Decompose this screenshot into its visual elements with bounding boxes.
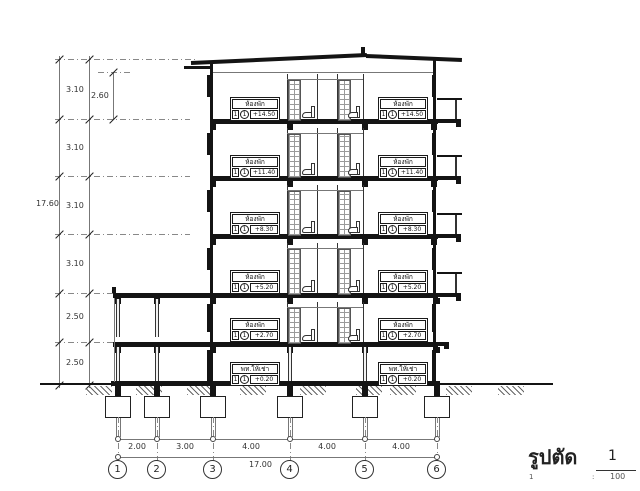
toilet-icon (348, 335, 358, 341)
tag-finish-box: 1 (232, 375, 239, 384)
tag-finish-circle: 1 (240, 168, 249, 177)
bathroom-wall-line (363, 74, 364, 119)
tag-detail-row: 11+0.20 (380, 375, 426, 384)
balcony-rail-top (437, 155, 462, 157)
toilet-icon (348, 169, 358, 175)
bathroom-wall-line (317, 74, 318, 119)
pile (159, 418, 160, 437)
window-bar (432, 350, 436, 382)
balcony-rail-post (455, 99, 457, 119)
tag-detail-row: 11+2.70 (380, 331, 426, 340)
tag-room-name: ห้องพัก (380, 99, 426, 109)
level-line (55, 342, 113, 343)
room-tag: ห้องพัก11+2.70 (230, 318, 280, 342)
tag-finish-box: 1 (380, 110, 387, 119)
tag-room-name: พท.ให้เช่า (380, 364, 426, 374)
tag-finish-box: 1 (232, 168, 239, 177)
beam-drop (431, 124, 437, 130)
tag-finish-circle: 1 (388, 225, 397, 234)
horizontal-dim-label: 2.00 (128, 442, 146, 451)
balcony-edge (456, 293, 461, 301)
dim-node (115, 436, 121, 442)
tag-level: +2.70 (398, 331, 426, 340)
pile (120, 418, 121, 437)
tag-detail-row: 11+11.40 (380, 168, 426, 177)
tag-finish-box: 1 (380, 168, 387, 177)
tag-level: +0.20 (398, 375, 426, 384)
level-line (55, 59, 195, 60)
vertical-dim-label: 3.10 (66, 85, 84, 94)
section-drawing-sheet: รูปตัด 1 1 : 100 3.103.103.103.102.502.5… (0, 0, 640, 491)
column (155, 347, 159, 381)
tag-level: +8.30 (250, 225, 278, 234)
window-bar (207, 190, 211, 212)
footing (105, 396, 131, 418)
tag-level: +2.70 (250, 331, 278, 340)
horizontal-dim-overall-label: 17.00 (249, 460, 272, 469)
level-line (55, 119, 190, 120)
grid-bubble: 1 (108, 460, 127, 479)
balcony-rail-top (437, 213, 462, 215)
floor-slab (113, 342, 438, 347)
tag-room-name: ห้องพัก (380, 157, 426, 167)
beam-drop (431, 181, 437, 187)
tag-level: +5.20 (398, 283, 426, 292)
level-line (55, 293, 113, 294)
ground-hatch (390, 386, 416, 395)
dim-line (118, 457, 438, 458)
roof-slope (191, 53, 367, 65)
room-tag: ห้องพัก11+8.30 (230, 212, 280, 236)
footing (277, 396, 303, 418)
column-stub (287, 386, 293, 396)
room-tag: พท.ให้เช่า11+0.20 (230, 362, 280, 386)
roof-eave (184, 66, 211, 69)
room-tag: ห้องพัก11+2.70 (378, 318, 428, 342)
tag-finish-circle: 1 (388, 168, 397, 177)
dim-node (210, 436, 216, 442)
beam-drop (210, 298, 216, 304)
bathroom-wall-line (317, 302, 318, 342)
beam-drop (210, 181, 216, 187)
parapet (112, 287, 116, 293)
tag-room-name: ห้องพัก (380, 214, 426, 224)
pile (435, 418, 436, 437)
column (116, 347, 120, 381)
tag-finish-box: 1 (380, 283, 387, 292)
window-bar (432, 190, 436, 212)
beam-drop (434, 298, 440, 304)
tag-finish-circle: 1 (240, 375, 249, 384)
roof-vent (361, 47, 365, 57)
bathroom-wall-line (363, 128, 364, 176)
tag-finish-circle: 1 (240, 331, 249, 340)
window-bar (432, 248, 436, 270)
grid-bubble: 4 (280, 460, 299, 479)
tag-level: +11.40 (250, 168, 278, 177)
column (116, 299, 120, 337)
pile (288, 418, 289, 437)
title-block: รูปตัด 1 1 : 100 (524, 444, 636, 486)
column (363, 347, 367, 381)
ceiling-line (213, 72, 433, 73)
window-bar (432, 75, 436, 97)
tag-detail-row: 11+2.70 (232, 331, 278, 340)
bathroom-wall-line (363, 243, 364, 293)
ground-hatch (86, 386, 112, 395)
horizontal-dim-label: 4.00 (392, 442, 410, 451)
balcony-rail-post (455, 156, 457, 176)
window-bar (207, 133, 211, 155)
window-bar (432, 133, 436, 155)
balcony-edge (456, 176, 461, 184)
tag-room-name: พท.ให้เช่า (232, 364, 278, 374)
vertical-dim-ceiling-label: 2.60 (91, 91, 109, 100)
footing (352, 396, 378, 418)
pile (292, 418, 293, 437)
tag-finish-box: 1 (232, 331, 239, 340)
footing (144, 396, 170, 418)
column (155, 299, 159, 337)
drawing-number: 1 (608, 448, 617, 464)
column-stub (154, 386, 160, 396)
grid-bubble: 6 (427, 460, 446, 479)
scale-numerator: 1 (529, 473, 533, 481)
tag-finish-box: 1 (380, 375, 387, 384)
tag-level: +8.30 (398, 225, 426, 234)
room-tag: ห้องพัก11+8.30 (378, 212, 428, 236)
tag-finish-circle: 1 (388, 110, 397, 119)
grid-bubble: 2 (147, 460, 166, 479)
grid-bubble: 3 (203, 460, 222, 479)
tag-finish-circle: 1 (388, 283, 397, 292)
tag-detail-row: 11+14.50 (380, 110, 426, 119)
pile (211, 418, 212, 437)
pile (367, 418, 368, 437)
tag-finish-circle: 1 (240, 283, 249, 292)
grid-bubble: 5 (355, 460, 374, 479)
wall-right (433, 58, 436, 382)
window-bar (207, 304, 211, 332)
dim-node (154, 436, 160, 442)
tag-finish-box: 1 (232, 225, 239, 234)
toilet-icon (348, 227, 358, 233)
tag-detail-row: 11+5.20 (232, 283, 278, 292)
scale-denominator: 100 (610, 472, 625, 481)
tag-level: +14.50 (398, 110, 426, 119)
balcony-edge (456, 234, 461, 242)
bathroom-wall-line (317, 243, 318, 293)
dim-chain-line (113, 72, 114, 119)
tag-detail-row: 11+8.30 (232, 225, 278, 234)
dim-node (362, 436, 368, 442)
bathroom-tiles (288, 134, 301, 178)
toilet-icon (348, 112, 358, 118)
bathroom-tiles (288, 308, 301, 344)
tag-level: +5.20 (250, 283, 278, 292)
ground-hatch (446, 386, 472, 395)
balcony-rail-top (437, 98, 462, 100)
drawing-title: รูปตัด (528, 446, 577, 468)
horizontal-dim-label: 3.00 (176, 442, 194, 451)
level-line (55, 234, 190, 235)
bathroom-wall-line (317, 128, 318, 176)
pile (439, 418, 440, 437)
dim-node (287, 436, 293, 442)
tag-room-name: ห้องพัก (380, 320, 426, 330)
column-stub (210, 386, 216, 396)
vertical-dim-label: 3.10 (66, 259, 84, 268)
tag-level: +14.50 (250, 110, 278, 119)
ground-hatch (300, 386, 326, 395)
window-bar (207, 350, 211, 382)
beam-drop (210, 347, 216, 353)
tag-finish-box: 1 (380, 225, 387, 234)
tag-finish-box: 1 (380, 331, 387, 340)
bathroom-wall-line (363, 302, 364, 342)
column-stub (434, 386, 440, 396)
tag-finish-circle: 1 (388, 375, 397, 384)
toilet-icon (302, 286, 312, 292)
beam-drop (210, 124, 216, 130)
balcony-rail-top (437, 272, 462, 274)
ground-hatch (240, 386, 266, 395)
tag-room-name: ห้องพัก (380, 272, 426, 282)
window-bar (432, 304, 436, 332)
ground-hatch (356, 386, 382, 395)
column-stub (362, 386, 368, 396)
room-tag: ห้องพัก11+14.50 (378, 97, 428, 121)
wall-left (210, 64, 213, 382)
toilet-icon (302, 227, 312, 233)
column-stub (115, 386, 121, 396)
room-tag: ห้องพัก11+14.50 (230, 97, 280, 121)
bathroom-tiles (288, 80, 301, 121)
window-bar (207, 75, 211, 97)
level-line (55, 176, 190, 177)
horizontal-dim-label: 4.00 (242, 442, 260, 451)
dim-node (434, 436, 440, 442)
tag-finish-box: 1 (232, 283, 239, 292)
balcony-edge (456, 119, 461, 127)
vertical-dim-label: 2.50 (66, 358, 84, 367)
vertical-dim-overall-label: 17.60 (36, 199, 59, 208)
tag-level: +0.20 (250, 375, 278, 384)
dim-chain-line (59, 56, 60, 388)
column (288, 347, 292, 381)
tag-detail-row: 11+11.40 (232, 168, 278, 177)
beam-drop (434, 347, 440, 353)
tag-finish-circle: 1 (388, 331, 397, 340)
vertical-dim-label: 3.10 (66, 143, 84, 152)
footing (200, 396, 226, 418)
balcony-rail-post (455, 214, 457, 234)
bathroom-wall-line (317, 185, 318, 234)
footing (424, 396, 450, 418)
pile (155, 418, 156, 437)
window-bar (207, 248, 211, 270)
tag-room-name: ห้องพัก (232, 157, 278, 167)
level-line (98, 72, 132, 73)
pile (215, 418, 216, 437)
annex-edge-line (114, 298, 115, 382)
balcony-rail-post (455, 273, 457, 293)
tag-level: +11.40 (398, 168, 426, 177)
pile (363, 418, 364, 437)
balcony-edge (444, 342, 449, 349)
tag-room-name: ห้องพัก (232, 272, 278, 282)
beam-drop (210, 239, 216, 245)
room-tag: พท.ให้เช่า11+0.20 (378, 362, 428, 386)
tag-finish-circle: 1 (240, 225, 249, 234)
title-underline (596, 470, 636, 471)
tag-room-name: ห้องพัก (232, 320, 278, 330)
vertical-dim-label: 2.50 (66, 312, 84, 321)
dim-line (118, 439, 438, 440)
toilet-icon (302, 335, 312, 341)
toilet-icon (302, 112, 312, 118)
tag-detail-row: 11+0.20 (232, 375, 278, 384)
ground-hatch (498, 386, 524, 395)
toilet-icon (302, 169, 312, 175)
scale-separator: : (592, 473, 594, 481)
horizontal-dim-label: 4.00 (318, 442, 336, 451)
roof-slope (366, 54, 462, 62)
room-tag: ห้องพัก11+5.20 (230, 270, 280, 294)
room-tag: ห้องพัก11+5.20 (378, 270, 428, 294)
dim-chain-line (89, 56, 90, 388)
toilet-icon (348, 286, 358, 292)
room-tag: ห้องพัก11+11.40 (378, 155, 428, 179)
room-tag: ห้องพัก11+11.40 (230, 155, 280, 179)
bathroom-tiles (288, 191, 301, 236)
pile (116, 418, 117, 437)
bathroom-wall-line (363, 185, 364, 234)
tag-detail-row: 11+14.50 (232, 110, 278, 119)
tag-finish-circle: 1 (240, 110, 249, 119)
tag-detail-row: 11+5.20 (380, 283, 426, 292)
tag-finish-box: 1 (232, 110, 239, 119)
tag-room-name: ห้องพัก (232, 214, 278, 224)
tag-detail-row: 11+8.30 (380, 225, 426, 234)
bathroom-tiles (288, 249, 301, 295)
tag-room-name: ห้องพัก (232, 99, 278, 109)
beam-drop (431, 239, 437, 245)
vertical-dim-label: 3.10 (66, 201, 84, 210)
